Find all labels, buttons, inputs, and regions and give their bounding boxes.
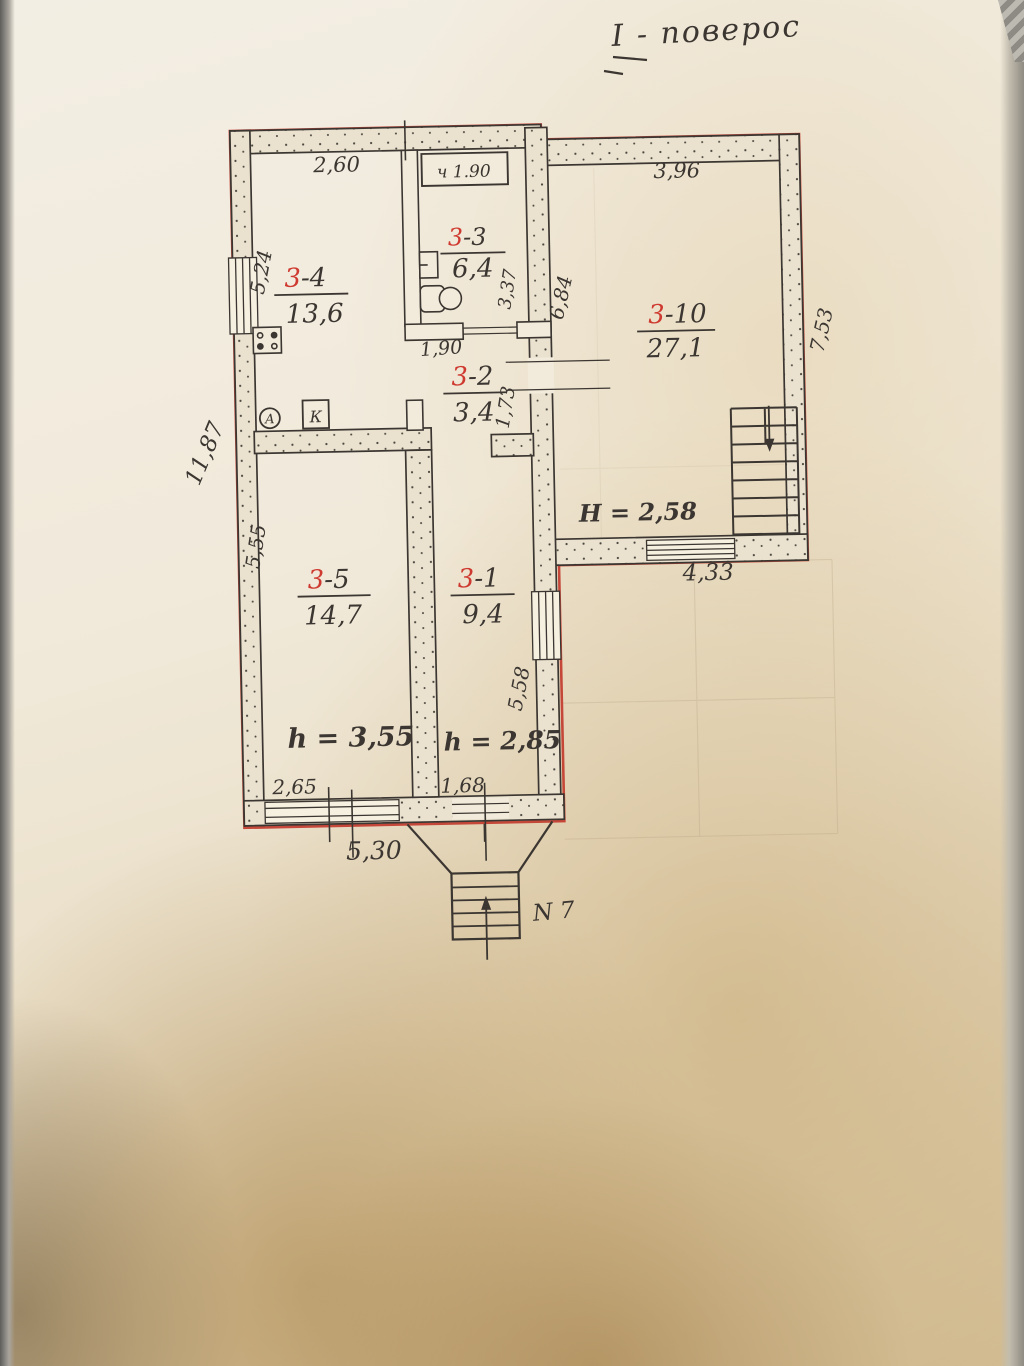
dim-outer-left: 11,87 <box>180 418 230 489</box>
photo-of-floor-plan: І - поверос <box>0 0 1024 1366</box>
room-3-2-prefix: 3 <box>451 362 468 392</box>
window-room5-bottom <box>265 800 399 824</box>
height-room10: H = 2,58 <box>578 496 698 527</box>
wall-room4-room2 <box>407 400 424 430</box>
stove-icon <box>253 327 282 354</box>
room-3-2-suffix: -2 <box>468 362 494 393</box>
dimension-labels: 2,60 ч 1.90 3,96 5,24 11,87 5,55 3,37 6,… <box>174 142 850 869</box>
room-3-4-prefix: 3 <box>284 264 301 294</box>
entrance-stairs <box>407 821 555 961</box>
floor-plan-svg: І - поверос <box>0 0 1024 1366</box>
room-3-10-prefix: 3 <box>648 300 665 330</box>
dim-closet: ч 1.90 <box>437 162 491 183</box>
toilet-bowl <box>439 287 461 309</box>
stove-burner <box>271 332 276 337</box>
room-3-3-area: 6,4 <box>452 254 494 285</box>
entrance-arrowhead <box>481 896 491 910</box>
wall-left <box>230 131 265 826</box>
porch-flare-right <box>517 821 553 872</box>
room-3-1-prefix: 3 <box>457 564 474 594</box>
a-circle-label: А <box>264 412 275 427</box>
staircase-room10-arrow <box>769 406 770 441</box>
room-3-1-area: 9,4 <box>462 599 504 630</box>
dim-corridor-top: 1,90 <box>419 336 463 361</box>
floor-title-text: І - поверос <box>610 9 802 54</box>
dim-room4-top: 2,60 <box>312 152 360 177</box>
wall-room3-bottom-b <box>517 321 551 338</box>
wall-middle <box>525 127 561 817</box>
door-room2-room10 <box>528 357 555 394</box>
room-3-3-suffix: -3 <box>463 223 487 251</box>
room-3-1-suffix: -1 <box>474 563 500 594</box>
room-3-10-area: 27,1 <box>645 333 705 364</box>
room-3-4-area: 13,6 <box>285 299 344 330</box>
stove-burner <box>258 344 263 349</box>
dim-room5-bottom: 2,65 <box>271 774 317 799</box>
room-3-1-fraction-bar <box>451 594 515 595</box>
wall-stub-radiator <box>491 434 533 457</box>
dim-corridor-right: 1,73 <box>492 385 520 430</box>
room-3-5-prefix: 3 <box>307 565 324 595</box>
title-underline <box>604 57 647 74</box>
room-3-5-suffix: -5 <box>324 565 350 596</box>
dim-room1-right: 5,58 <box>503 664 535 712</box>
dim-entrance-width: 1,68 <box>440 773 485 798</box>
red-outline <box>230 119 813 828</box>
room-3-4-suffix: -4 <box>301 263 327 294</box>
dim-outer-right: 7,53 <box>805 306 838 355</box>
dim-room3-right: 3,37 <box>494 267 521 310</box>
dim-room10-top: 3,96 <box>653 158 700 183</box>
floor-plan-drawing: К А 3 <box>173 111 851 966</box>
room-3-10-suffix: -10 <box>664 299 706 330</box>
height-room5: h = 3,55 <box>287 721 414 755</box>
room-3-2-area: 3,4 <box>453 398 495 429</box>
height-room1: h = 2,85 <box>443 725 561 756</box>
dim-notch-bottom: 4,33 <box>681 560 734 587</box>
room-3-3-prefix: 3 <box>448 223 464 251</box>
entrance-stairs-label: N 7 <box>531 897 577 927</box>
page-left-edge <box>0 0 15 1366</box>
porch-flare-left <box>407 824 451 875</box>
outer-walls <box>230 119 813 826</box>
k-box-label: К <box>308 407 322 426</box>
room-3-5-area: 14,7 <box>304 600 363 631</box>
page-right-edge <box>1000 0 1024 1366</box>
wall-room4-room3 <box>401 150 421 326</box>
door-entrance <box>452 797 509 819</box>
page-title: І - поверос <box>604 9 802 74</box>
dim-bottom-outer: 5,30 <box>346 836 402 866</box>
entrance-arrow <box>486 907 487 960</box>
staircase-room10-arrowhead <box>764 439 774 452</box>
